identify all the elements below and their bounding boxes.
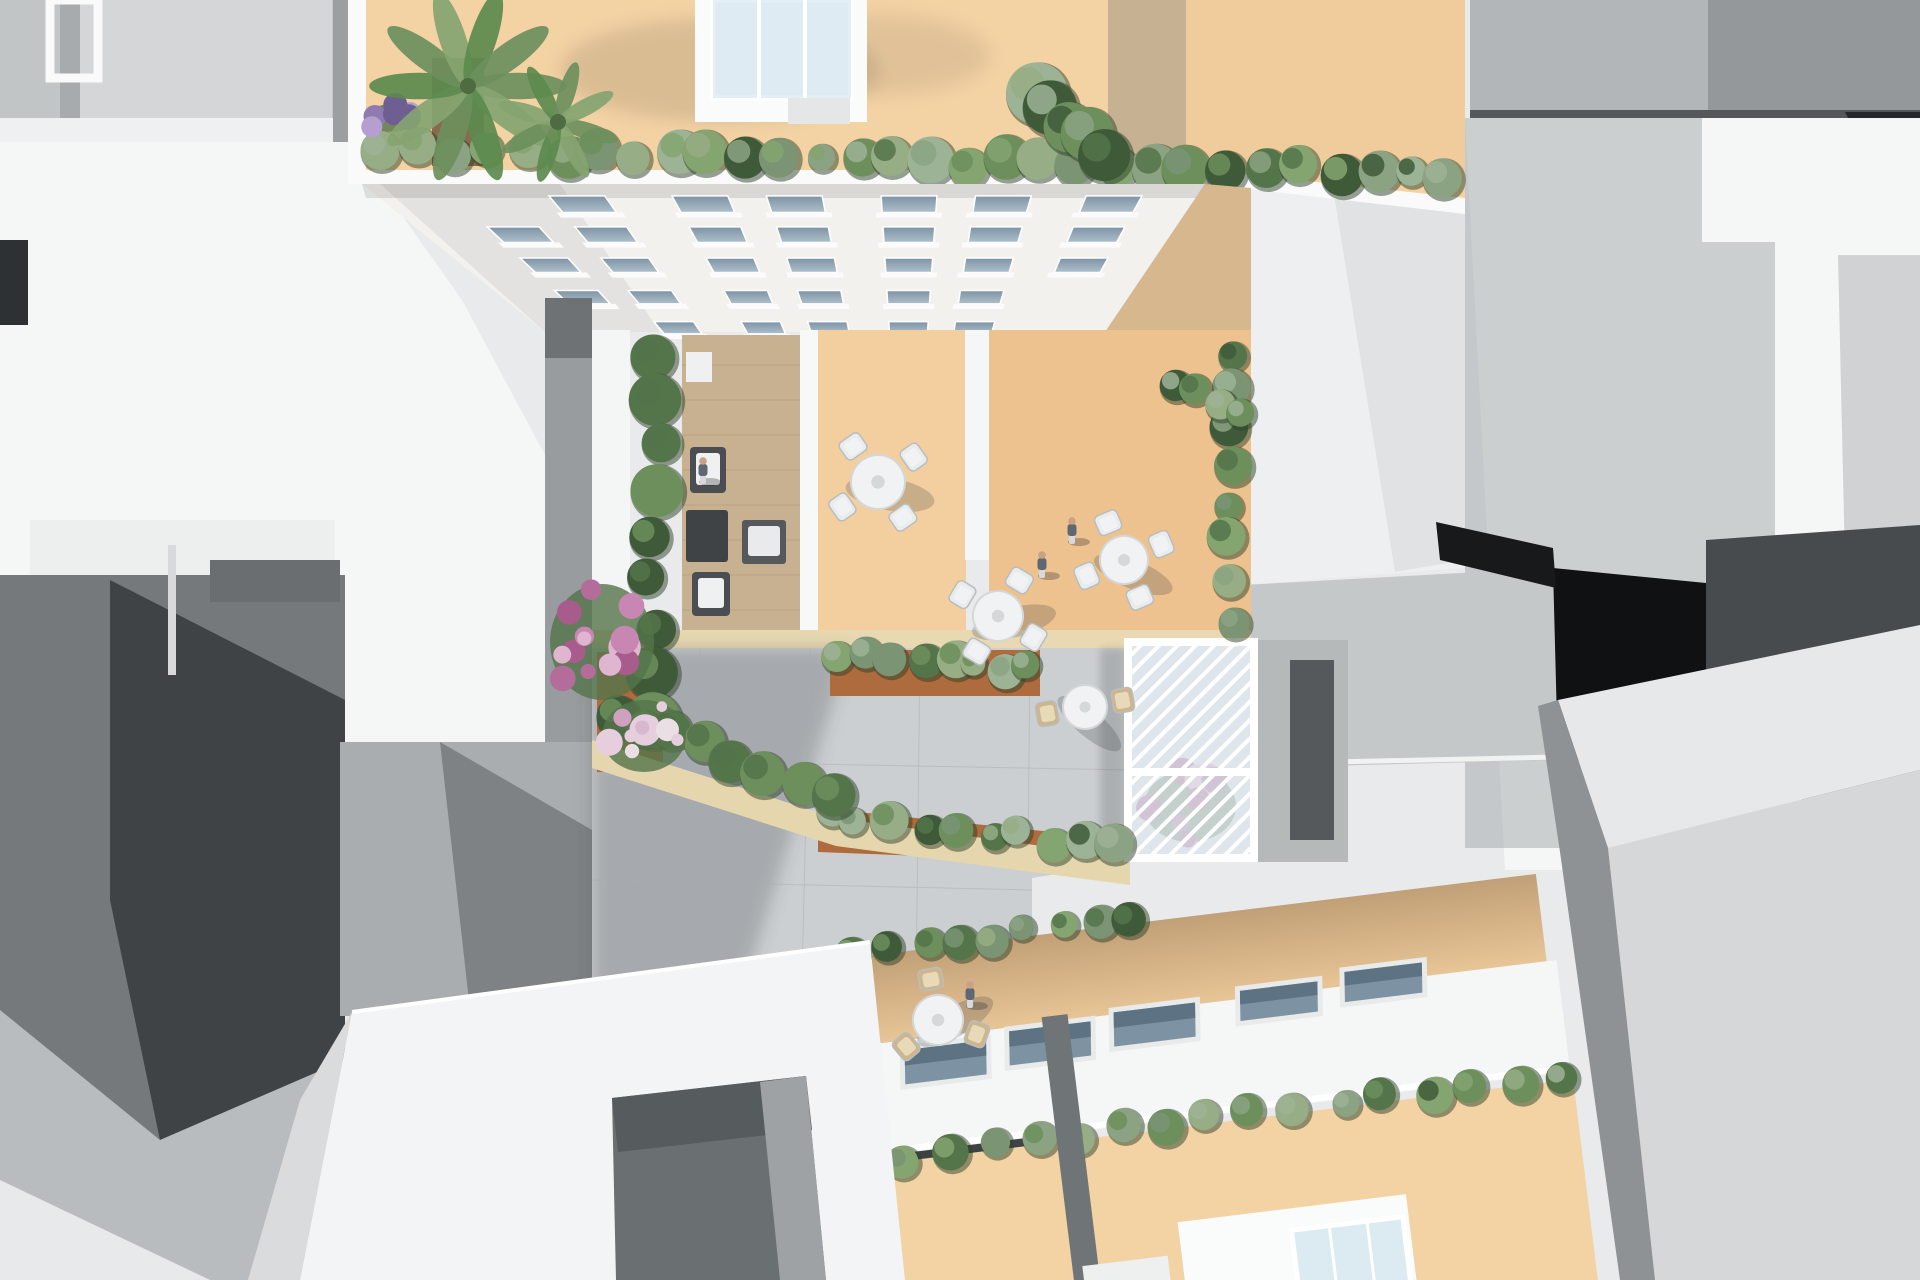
flower [619,593,645,619]
armchair-b-cushion [698,578,724,608]
facade-window [1054,258,1108,272]
shrub-highlight [743,755,768,780]
roof-skylight-penthouse [695,0,867,124]
window-sill [1071,212,1139,217]
facade-window [968,227,1022,243]
shrub-highlight [852,639,870,657]
shrub-highlight [660,133,685,158]
shrub-highlight [632,520,654,542]
flower [557,600,582,625]
facade-window [672,196,735,213]
window-sill [498,242,564,247]
window-sill [675,212,743,217]
coffee-table-dark [686,510,728,562]
shrub-highlight [1425,161,1447,183]
flower [581,664,596,679]
penthouse-skylight-glass [713,0,851,98]
penthouse-step [788,98,850,124]
flower [577,631,591,645]
chair-seat [1114,691,1131,709]
facade-window [973,196,1031,213]
chair [917,967,944,992]
shrub-highlight [634,338,659,363]
shrub-highlight [911,646,930,665]
shrub-highlight [619,144,638,163]
window-sill [957,272,1014,277]
shrub-highlight [634,468,663,497]
facade-window [881,196,937,213]
shrub-highlight [987,138,1012,163]
flower [611,626,639,654]
top-right-gray-band-dark [1708,0,1920,112]
shrub-highlight [911,140,937,166]
facade-window [1067,227,1125,243]
shrub-highlight [1399,159,1415,175]
facade-window [885,258,933,272]
shrub-highlight [815,777,839,801]
person-head [966,981,974,989]
aerial-render-stage: Top-down aerial 3D architectural renderi… [0,0,1920,1280]
facade-window [797,291,843,304]
shrub-highlight [1003,818,1019,834]
person-torso [699,464,708,476]
shrub-highlight [983,825,998,840]
shrub-highlight [1215,567,1233,585]
shrub-highlight [786,765,810,789]
shrub-highlight [1165,148,1191,174]
shrub-highlight [1208,153,1230,175]
shrub-highlight [687,724,710,747]
gap-line [333,0,349,142]
facade-window [689,227,747,243]
person-torso [966,988,975,1000]
shrub-highlight [951,151,972,172]
person-head [699,457,707,465]
shrub-highlight [941,816,960,835]
chair [1110,687,1135,714]
window-sill [961,242,1023,247]
facade-window [724,291,773,304]
left-edge-dark-block [0,240,28,325]
window-sill [880,272,937,277]
shrub-highlight [873,804,894,825]
window-sill [883,304,935,309]
window-sill [876,212,942,217]
shrub-highlight [1216,495,1231,510]
facade-window [963,258,1013,272]
window-sill [878,242,939,247]
flower [599,653,621,675]
corner-block-face [1608,770,1920,1280]
window-sill [709,272,768,277]
person-head [1068,517,1076,525]
shrub-highlight [1249,151,1271,173]
shrub-highlight [1162,372,1179,389]
street-lamp-pole [168,545,176,675]
window-sill [692,242,756,247]
terrace-divider-wall-1 [800,330,820,632]
window-sill [786,272,844,277]
shrub-highlight [1020,141,1043,164]
person-torso [1068,524,1077,536]
facade-window [787,258,838,272]
shrub-highlight [686,133,710,157]
window-sill [582,242,647,247]
scene-svg [0,0,1920,1280]
shrub-highlight [645,426,666,447]
shrub-highlight [1221,610,1238,627]
flower [671,734,683,746]
coffee-table-2-top [748,526,780,556]
window-sill [765,212,832,217]
facade-window [777,227,832,243]
window-sill [797,304,850,309]
facade-window [741,322,786,334]
flower [635,720,649,734]
shrub-highlight [630,561,650,581]
canopy-glass-stripes [1128,642,1254,858]
glass-canopy [1100,640,1348,862]
shrub-highlight [1082,133,1111,162]
west-gap-wall-dark [545,298,592,358]
shrub-highlight [917,817,934,834]
facade-window [887,291,930,304]
flower [596,729,623,756]
shrub-highlight [874,139,896,161]
shrub-highlight [1217,449,1238,470]
window-sill [966,212,1033,217]
window-sill [530,272,591,277]
shrub-highlight [940,643,961,664]
context-top-left-block [0,0,349,148]
person-head [1038,551,1046,559]
facade-window [766,196,825,213]
shrub-highlight [846,141,867,162]
chair-seat [922,971,940,988]
facade-window [883,227,935,243]
shrub-highlight [875,645,894,664]
flower [625,744,639,758]
window-sill [1059,242,1123,247]
lower-penthouse-skylight [1292,1217,1413,1280]
window-sill [726,304,780,309]
shrub-highlight [824,643,841,660]
flower [361,116,382,137]
palm-crown [460,78,476,94]
shrub-highlight [1228,401,1243,416]
shrub-highlight [1069,824,1090,845]
terrace-divider-wall-2 [965,330,989,560]
shrub-highlight [1282,148,1303,169]
shrub-highlight [1013,652,1029,668]
shrub-highlight [1135,147,1161,173]
flower [613,709,631,727]
shrub-highlight [633,377,662,406]
shrub-highlight [1181,376,1198,393]
window-sill [634,304,689,309]
shrub-highlight [762,141,784,163]
shrub-highlight [990,657,1009,676]
shrub-highlight [1324,157,1347,180]
window-sill [608,272,668,277]
shrub-highlight [1362,154,1385,177]
shrub-highlight [810,146,825,161]
flower [656,701,667,712]
flower [581,579,602,600]
window-sill [556,212,626,217]
shrub-highlight [1039,831,1058,850]
facade-window [958,291,1004,304]
shrub-highlight [727,140,750,163]
canopy-neighbor-inset [1290,660,1334,840]
window-sill [953,304,1005,309]
flower [550,666,576,692]
shrub-highlight [712,744,736,768]
top-left-block-inner-wall [60,0,80,122]
deck-side-table [686,352,712,382]
facade-window [706,258,760,272]
shrub-highlight [1208,392,1225,409]
canyon-block [210,560,340,602]
shrub-highlight [1210,520,1231,541]
facade-window [1079,196,1142,213]
shrub-highlight [1220,344,1236,360]
shrub-highlight [1097,826,1119,848]
flower [553,646,571,664]
window-sill [1047,272,1106,277]
chair-seat [1039,705,1056,723]
window-sill [776,242,838,247]
shrub-highlight [1215,371,1236,392]
person-torso [1038,558,1047,570]
chair [1035,700,1060,727]
palm-crown [550,114,566,130]
